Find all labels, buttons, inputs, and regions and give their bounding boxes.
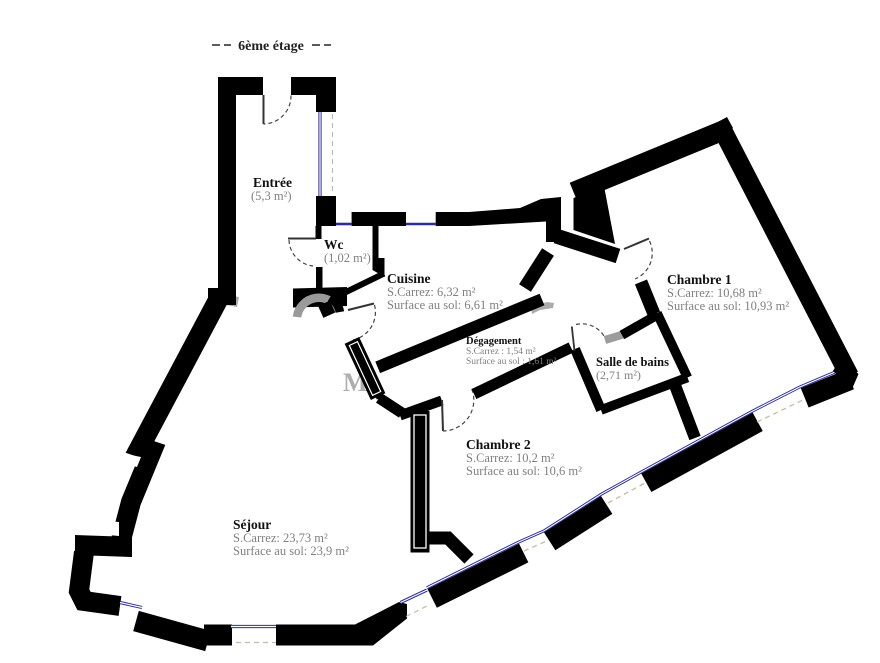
svg-text:Surface au sol: 6,61 m²: Surface au sol: 6,61 m² [387,298,503,312]
svg-text:(2,71 m²): (2,71 m²) [596,368,641,382]
svg-text:Cuisine: Cuisine [387,271,431,286]
svg-text:Wc: Wc [324,237,344,252]
svg-text:S.Carrez : 1,54 m²: S.Carrez : 1,54 m² [466,347,536,357]
svg-text:Surface au sol: 23,9 m²: Surface au sol: 23,9 m² [233,544,349,558]
svg-text:Séjour: Séjour [233,517,271,532]
svg-text:Surface au sol: 10,93 m²: Surface au sol: 10,93 m² [667,299,789,313]
svg-text:S.Carrez: 6,32 m²: S.Carrez: 6,32 m² [387,285,476,299]
svg-text:Dégagement: Dégagement [466,336,522,347]
svg-text:Surface au sol: 10,6 m²: Surface au sol: 10,6 m² [466,464,582,478]
svg-text:Surface au sol : 1,61 m²: Surface au sol : 1,61 m² [466,356,557,367]
svg-text:Chambre 2: Chambre 2 [466,437,531,452]
svg-text:Chambre 1: Chambre 1 [667,272,732,287]
svg-text:6ème étage: 6ème étage [238,39,304,54]
svg-text:S.Carrez: 10,2 m²: S.Carrez: 10,2 m² [466,451,555,465]
svg-text:(1,02 m²): (1,02 m²) [324,251,371,265]
svg-text:S.Carrez: 23,73 m²: S.Carrez: 23,73 m² [233,531,328,545]
svg-text:(5,3 m²): (5,3 m²) [251,189,292,203]
svg-text:Salle de bains: Salle de bains [596,355,669,369]
svg-text:Entrée: Entrée [253,175,292,190]
svg-text:S.Carrez: 10,68 m²: S.Carrez: 10,68 m² [667,286,762,300]
